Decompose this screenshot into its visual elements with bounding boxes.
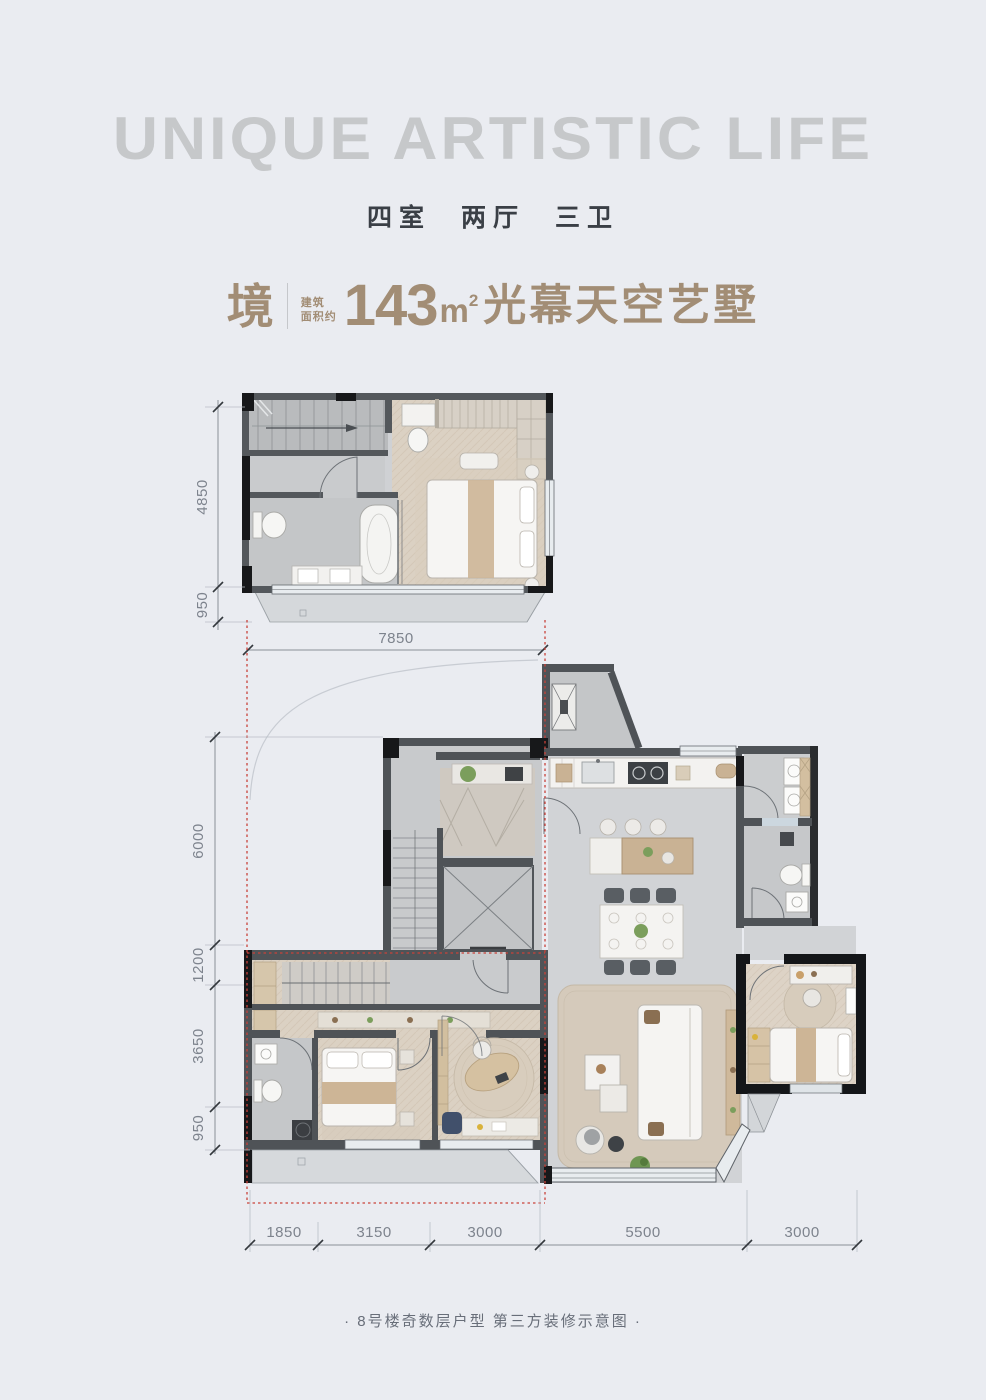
dim-lower-3650: 3650	[190, 1028, 207, 1063]
stool	[650, 819, 666, 835]
shoe-cabinet	[254, 962, 276, 1032]
nightstand	[400, 1112, 414, 1126]
stair-elevator-core	[383, 738, 548, 960]
bed-runner	[322, 1082, 396, 1104]
dining-chair	[604, 888, 624, 903]
sofa	[638, 1005, 702, 1140]
dining-chair	[656, 960, 676, 975]
ac-platform	[748, 1094, 780, 1132]
upper-bedroom-furniture	[415, 453, 546, 592]
left-bathroom	[252, 1038, 318, 1140]
dim-lower-6000: 6000	[190, 823, 207, 858]
right-bedroom	[736, 954, 866, 1132]
dim-upper-950: 950	[194, 592, 211, 619]
bathtub	[360, 505, 398, 583]
chair	[803, 989, 821, 1007]
dim-lower-1200: 1200	[190, 947, 207, 982]
dining-chair	[630, 960, 650, 975]
office-chair	[442, 1112, 462, 1134]
dim-lower-950: 950	[190, 1115, 207, 1142]
sofa-pillow	[648, 1122, 664, 1136]
shower-head	[780, 832, 794, 846]
floorplan-poster: UNIQUE ARTISTIC LIFE 四室 两厅 三卫 境 建筑 面积约 1…	[0, 0, 986, 1400]
upper-landing-floor	[249, 452, 385, 498]
living-room	[558, 985, 740, 1176]
kitchen-island	[622, 838, 693, 874]
lower-floor-plan: 上	[244, 664, 866, 1184]
dim-upper-4850: 4850	[194, 479, 211, 514]
floorplan-drawing: 4850 950 7850	[0, 0, 986, 1400]
stool	[625, 819, 641, 835]
dining-chair	[604, 960, 624, 975]
dim-lower-1850: 1850	[266, 1224, 301, 1241]
hall-shelf	[318, 1012, 490, 1028]
pouf-dark	[608, 1136, 624, 1152]
dim-lower-3150: 3150	[356, 1224, 391, 1241]
dim-upper-7850: 7850	[378, 630, 413, 647]
dining-chair	[656, 888, 676, 903]
upper-floor-plan	[242, 393, 554, 622]
toilet	[262, 512, 286, 538]
plant	[460, 766, 476, 782]
nightstand	[525, 465, 539, 479]
sofa-pillow	[644, 1010, 660, 1024]
bed-runner	[468, 480, 494, 578]
sink	[582, 762, 614, 783]
nightstand	[400, 1050, 414, 1064]
entry-flue	[542, 664, 639, 760]
stool	[600, 819, 616, 835]
washbasin	[255, 1044, 277, 1064]
bench	[460, 453, 498, 469]
stove	[628, 762, 668, 784]
dining-chair	[630, 888, 650, 903]
footer-disclaimer: · 8号楼奇数层户型 第三方装修示意图 ·	[0, 1310, 986, 1331]
toilet	[262, 1080, 282, 1102]
dim-lower-3000-left: 3000	[467, 1224, 502, 1241]
toilet	[780, 865, 802, 885]
bedroom-rug	[322, 1126, 420, 1139]
washbasin	[786, 892, 808, 912]
wardrobe	[748, 1028, 770, 1082]
dim-lower-3000-right: 3000	[784, 1224, 819, 1241]
cutting-board	[556, 764, 572, 782]
lower-balcony	[244, 1150, 538, 1183]
upper-balcony	[255, 592, 545, 622]
study-shelf	[438, 1020, 448, 1125]
bed-runner	[796, 1028, 816, 1082]
dim-lower-5500: 5500	[625, 1224, 660, 1241]
